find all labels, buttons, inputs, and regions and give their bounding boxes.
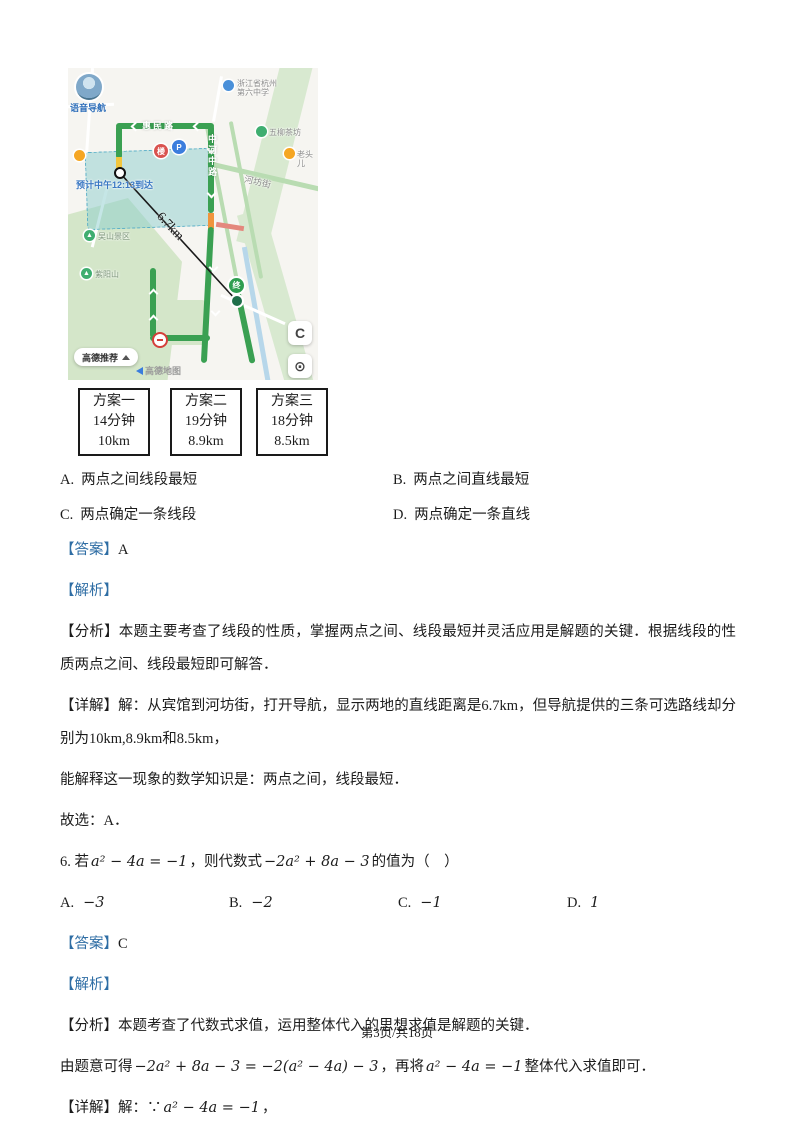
plan-distance: 10km <box>80 432 148 452</box>
q5-fenxi: 【分析】本题主要考查了线段的性质，掌握两点之间、线段最短并灵活应用是解题的关键．… <box>60 616 736 682</box>
q5-option-a: A.两点之间线段最短 <box>60 470 393 491</box>
plan-distance: 8.9km <box>172 432 240 452</box>
q5-explain: 能解释这一现象的数学知识是：两点之间，线段最短． <box>60 764 736 797</box>
q5-answer-line: 【答案】A <box>60 534 736 567</box>
route-plan-card: 方案三 18分钟 8.5km <box>256 388 328 456</box>
math-expression: a² − 4a = −1 <box>162 1100 262 1116</box>
plan-name: 方案三 <box>258 392 326 412</box>
answer-value: C <box>118 936 128 952</box>
route-plan-card: 方案一 14分钟 10km <box>78 388 150 456</box>
plan-time: 14分钟 <box>80 412 148 432</box>
plan-time: 19分钟 <box>172 412 240 432</box>
destination-marker <box>232 296 242 306</box>
amap-watermark: 高德地图 <box>136 364 181 377</box>
q6-option-d: D.1 <box>567 887 736 920</box>
q5-options-row1: A.两点之间线段最短 B.两点之间直线最短 <box>60 470 736 491</box>
eta-label: 预计中午12:13到达 <box>76 178 153 191</box>
answer-value: A <box>118 542 128 558</box>
jiexi-tag: 【解析】 <box>60 583 118 599</box>
plan-name: 方案二 <box>172 392 240 412</box>
refresh-icon: C <box>295 325 305 341</box>
locate-icon: ⊙ <box>294 358 306 375</box>
q5-option-b: B.两点之间直线最短 <box>393 470 726 491</box>
q6-options-row: A.−3 B.−2 C.−1 D.1 <box>60 887 736 920</box>
math-expression: a² − 4a = −1 <box>424 1059 524 1075</box>
answer-tag: 【答案】 <box>60 542 118 558</box>
plan-name: 方案一 <box>80 392 148 412</box>
q5-jiexi-line: 【解析】 <box>60 575 736 608</box>
locate-button[interactable]: ⊙ <box>288 354 312 378</box>
q6-option-b: B.−2 <box>229 887 398 920</box>
q6-option-c: C.−1 <box>398 887 567 920</box>
page-number: 第3页/共18页 <box>0 1022 794 1041</box>
q5-option-d: D.两点确定一条直线 <box>393 505 726 526</box>
q5-option-c: C.两点确定一条线段 <box>60 505 393 526</box>
q6-derive: 由题意可得−2a² + 8a − 3 = −2(a² − 4a) − 3，再将a… <box>60 1051 736 1084</box>
destination-badge: 终 <box>229 278 244 293</box>
q6-option-a: A.−3 <box>60 887 229 920</box>
route-plan-card: 方案二 19分钟 8.9km <box>170 388 242 456</box>
answer-tag: 【答案】 <box>60 936 118 952</box>
q5-choose: 故选：A． <box>60 805 736 838</box>
math-expression: −2a² + 8a − 3 <box>262 854 372 870</box>
q5-xiangjie: 【详解】解：从宾馆到河坊街，打开导航，显示两地的直线距离是6.7km，但导航提供… <box>60 690 736 756</box>
jiexi-tag: 【解析】 <box>60 977 118 993</box>
q6-stem: 6. 若a² − 4a = −1，则代数式−2a² + 8a − 3的值为（ ） <box>60 846 736 879</box>
refresh-button[interactable]: C <box>288 321 312 345</box>
plan-distance: 8.5km <box>258 432 326 452</box>
route-plans: 方案一 14分钟 10km 方案二 19分钟 8.9km 方案三 18分钟 8.… <box>60 388 736 456</box>
q5-options-row2: C.两点确定一条线段 D.两点确定一条直线 <box>60 505 736 526</box>
recommend-route-button[interactable]: 高德推荐 <box>74 348 138 366</box>
math-expression: −2a² + 8a − 3 = −2(a² − 4a) − 3 <box>133 1059 381 1075</box>
plan-time: 18分钟 <box>258 412 326 432</box>
q6-jiexi-line: 【解析】 <box>60 969 736 1002</box>
collapse-arrow-icon <box>122 355 130 360</box>
math-expression: a² − 4a = −1 <box>89 854 189 870</box>
no-entry-sign-icon <box>152 332 168 348</box>
q6-answer-line: 【答案】C <box>60 928 736 961</box>
navigation-map: 惠民路 中河中路 河坊街 语音导航 浙江省杭州 第六中学 五柳茶坊 老头儿 ▲ … <box>68 68 318 380</box>
straight-line <box>68 68 318 380</box>
amap-logo-icon <box>136 367 143 375</box>
exam-page: 惠民路 中河中路 河坊街 语音导航 浙江省杭州 第六中学 五柳茶坊 老头儿 ▲ … <box>0 0 794 1122</box>
q6-detail: 【详解】解：∵a² − 4a = −1， <box>60 1092 736 1122</box>
